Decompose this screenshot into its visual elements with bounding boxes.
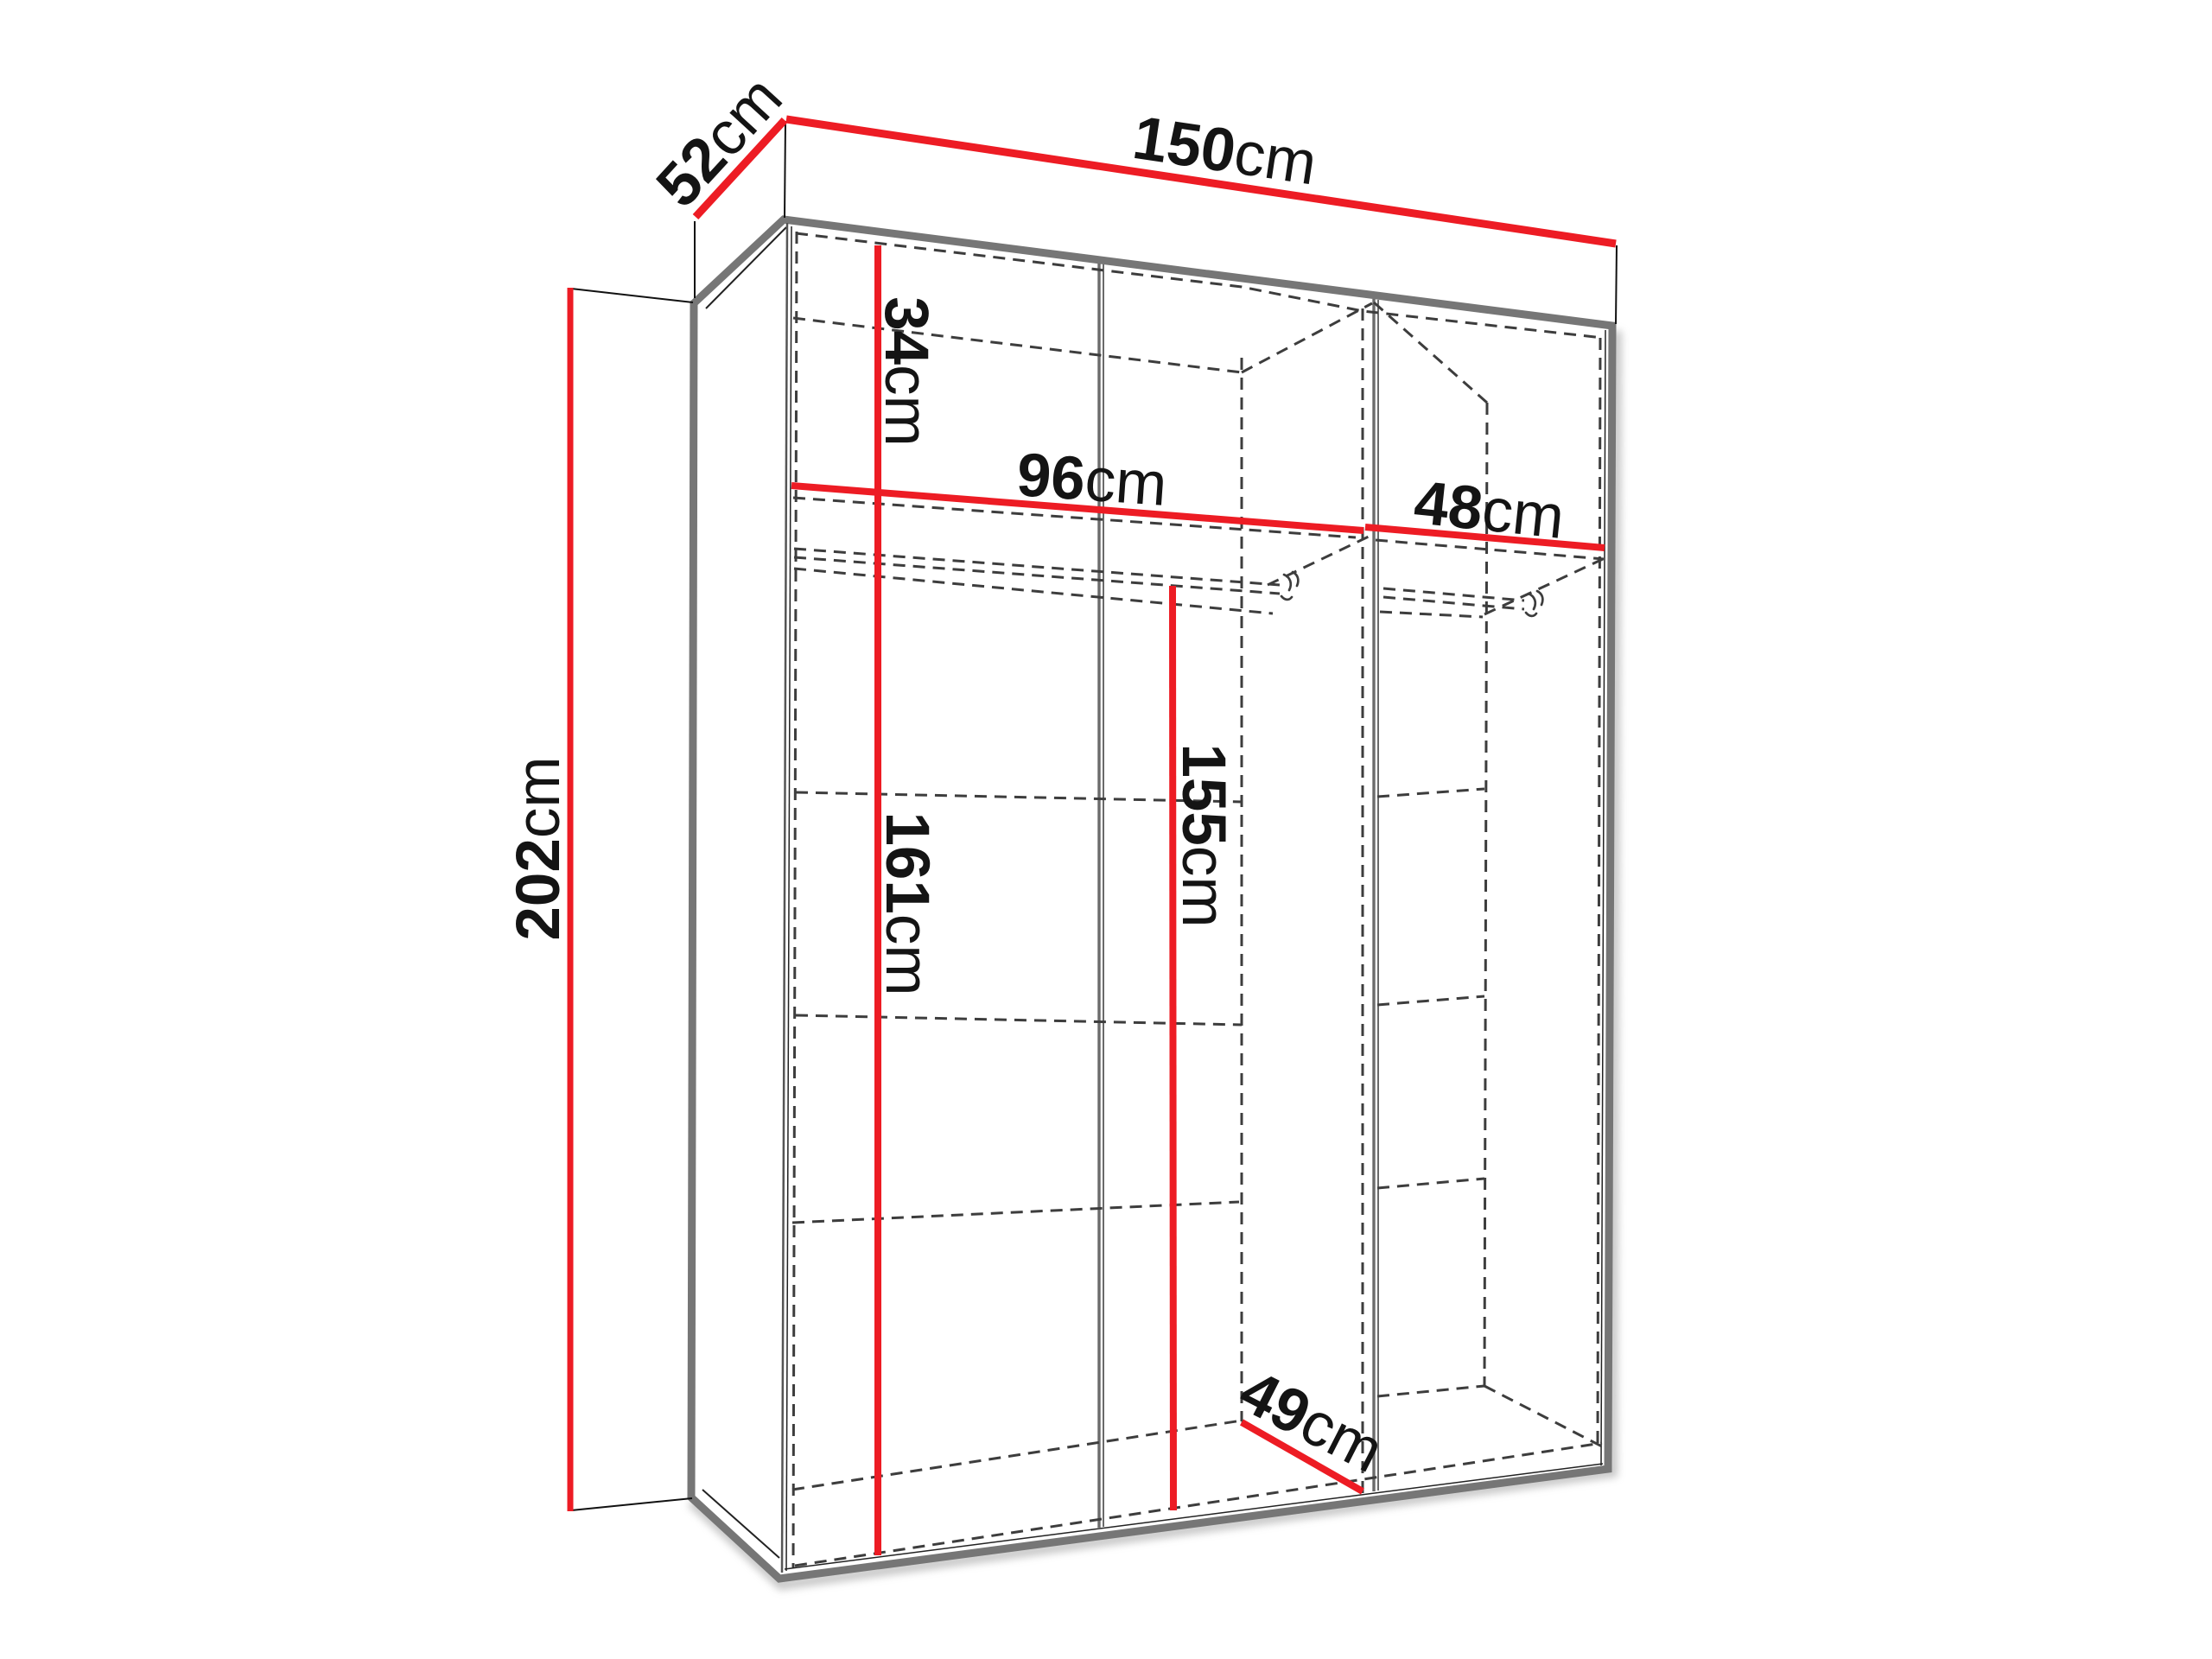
svg-text:155cm: 155cm <box>1169 743 1237 927</box>
svg-text:202cm: 202cm <box>505 756 573 940</box>
svg-text:96cm: 96cm <box>1014 441 1169 519</box>
svg-text:34cm: 34cm <box>872 296 940 447</box>
svg-text:161cm: 161cm <box>873 811 941 995</box>
